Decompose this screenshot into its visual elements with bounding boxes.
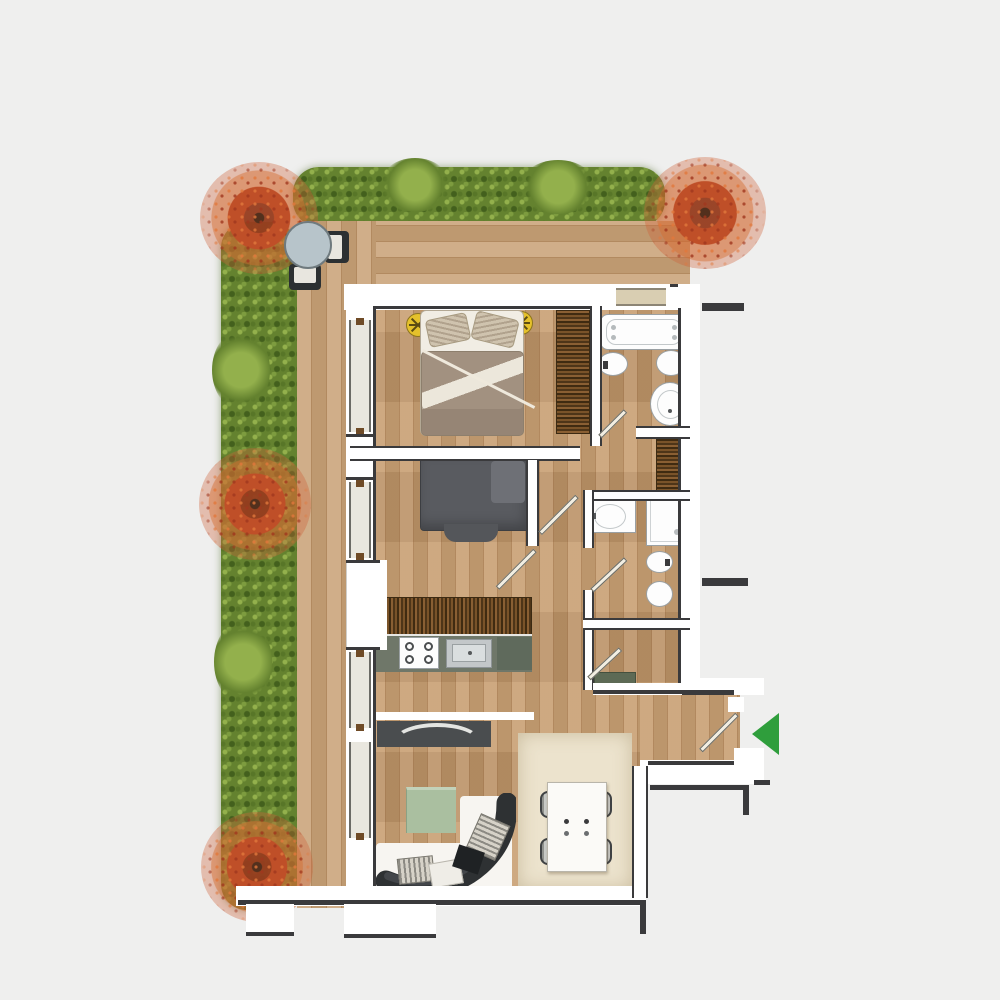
bed-pillow [470,310,520,349]
pier-cap [346,477,376,480]
wall-bottom-stub2 [344,904,436,938]
wall-bath2-bottom [583,618,690,630]
bidet-second [646,551,673,573]
single-bed [420,457,530,531]
washbasin-counter [588,499,636,533]
pier-cap [346,560,380,563]
window-mullion [356,480,364,487]
wall-bottom-corner [640,900,646,934]
wall-bath1-bottom [636,426,690,439]
window-left-3 [349,652,371,728]
window-left-4 [349,742,371,838]
wall-bottom-stub1-cap [246,932,294,936]
pier-cap [346,647,380,650]
wall-bed2-east [526,460,539,546]
window-mullion [356,553,364,560]
hedge-bump [380,158,450,212]
wall-step-h [650,785,748,790]
bed-pillow [425,312,472,348]
tv-half-wall [372,712,534,720]
tv-screen [393,723,481,761]
floor-plan [0,0,1000,1000]
entrance-arrow [752,713,779,755]
wall-hall-south-line [593,690,690,694]
party-wall-stub-top [702,303,744,311]
wall-bath2-top [583,490,690,501]
hedge-bump [212,330,270,410]
wall-entry-top-line [682,690,734,695]
wall-right [678,284,700,694]
hedge-top [293,167,665,227]
autumn-tree-mid-left [199,448,311,560]
wall-top-inner-line [358,306,598,309]
hedge-bump [520,160,596,214]
wall-entry-hinge [728,697,744,712]
window-left-2 [349,482,371,558]
bed2-drape [444,524,498,542]
window-mullion [356,318,364,325]
bedroom2-wardrobe [374,597,532,635]
pier-junction [346,560,387,650]
autumn-tree-top-right [644,157,766,269]
wall-bed1-bath1 [590,306,602,446]
wall-bath2-left-upper [583,490,594,548]
bistro-table [284,221,332,269]
wall-living-east [632,766,648,898]
party-wall-stub-mid [702,578,748,586]
bathroom-window-sill [616,288,666,306]
tv-sideboard [377,721,491,747]
bathtub [600,314,688,350]
pier-cap [346,434,376,437]
wall-below-bed1 [350,446,580,461]
window-mullion [356,650,364,657]
hedge-left [221,222,297,910]
hedge-bump [214,620,272,704]
kitchen-sink [446,639,492,668]
toilet-second [646,581,673,607]
window-left-1 [349,320,371,432]
kitchen-counter-end [497,637,532,670]
bidet-main [598,352,628,376]
wall-bottom-stub2-cap [344,934,436,938]
window-mullion [356,724,364,731]
dining-table [547,782,607,872]
cooktop [399,637,439,669]
bed2-pillow [491,461,525,503]
wall-bottom-line [238,900,644,905]
window-mullion [356,833,364,840]
wall-step-v [743,785,749,815]
master-wardrobe [556,310,590,434]
wall-step-dash [754,780,770,785]
double-bed [420,310,524,436]
wall-corridor-bottom-line [648,761,734,765]
